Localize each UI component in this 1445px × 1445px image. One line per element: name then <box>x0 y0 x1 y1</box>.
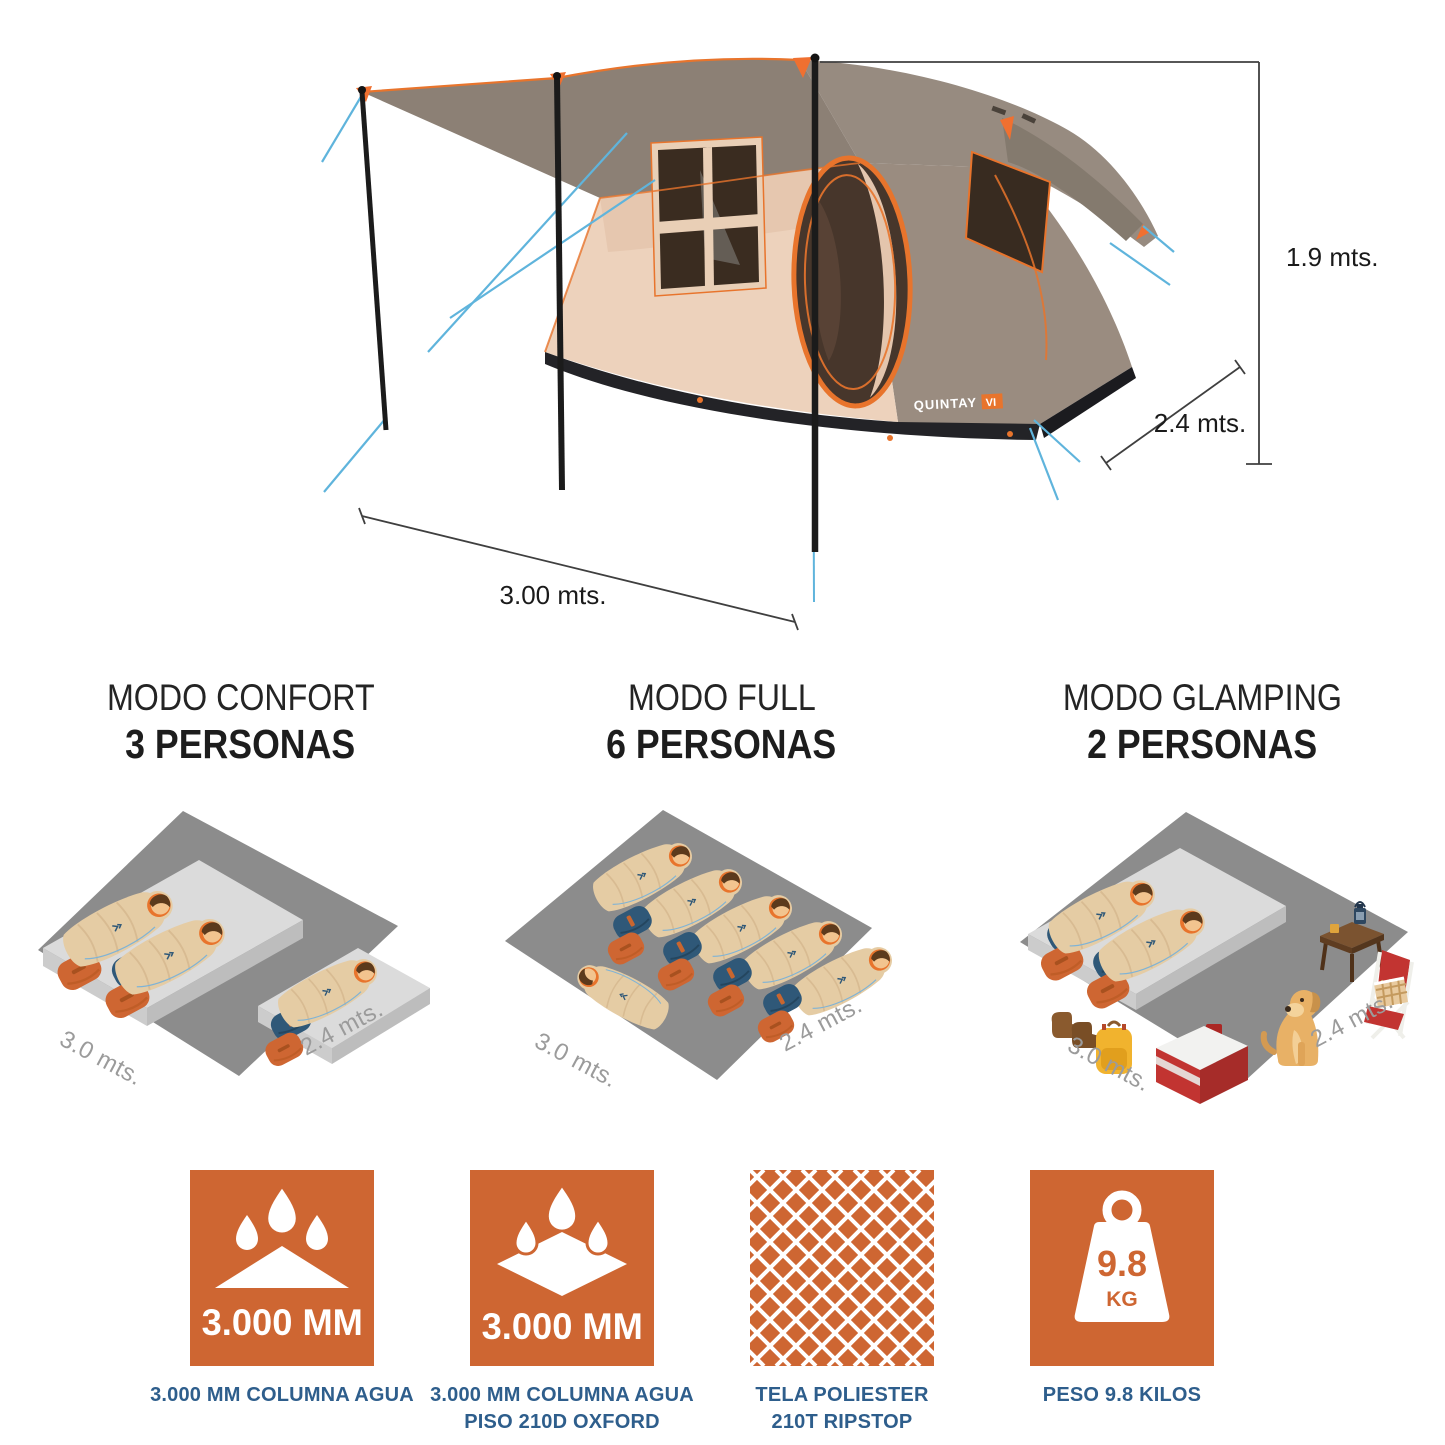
mode-full-illustration: 3.0 mts. 2.4 mts. <box>487 798 957 1134</box>
floor-width-label: 3.0 mts. <box>530 1027 622 1093</box>
caption-line: 3.000 MM COLUMNA AGUA <box>150 1382 414 1409</box>
depth-dimension-label: 2.4 mts. <box>1154 408 1246 438</box>
mode-title: MODO GLAMPING <box>1063 676 1342 720</box>
ripstop-weave-icon <box>750 1170 934 1366</box>
feature-caption: PESO 9.8 KILOS <box>1043 1382 1201 1409</box>
mode-capacity: 3 PERSONAS <box>126 721 356 768</box>
feature-caption: TELA POLIESTER 210T RIPSTOP <box>755 1382 928 1436</box>
weight-unit: KG <box>1106 1288 1138 1311</box>
tent-body: QUINTAY VI <box>356 57 1158 441</box>
mode-glamping-column: MODO GLAMPING 2 PERSONAS <box>962 676 1443 1134</box>
water-column-badge: 3.000 MM <box>190 1170 374 1366</box>
brand-model: VI <box>985 397 996 410</box>
feature-floor-water-column: 3.000 MM 3.000 MM COLUMNA AGUA PISO 210D… <box>470 1170 654 1436</box>
mode-capacity: 6 PERSONAS <box>607 721 837 768</box>
caption-line: PISO 210D OXFORD <box>430 1409 694 1436</box>
front-window <box>651 137 766 296</box>
lantern <box>1354 902 1366 924</box>
capacity-modes-section: MODO CONFORT 3 PERSONAS 3.0 mts. 2.4 mts… <box>0 676 1445 1134</box>
ripstop-badge <box>750 1170 934 1366</box>
mode-title: MODO FULL <box>628 676 816 720</box>
caption-line: TELA POLIESTER <box>755 1382 928 1409</box>
caption-line: 210T RIPSTOP <box>755 1409 928 1436</box>
floor-water-column-value: 3.000 MM <box>481 1306 642 1348</box>
floor-width-label: 3.0 mts. <box>55 1025 147 1091</box>
weight-icon: 9.8 KG <box>1047 1188 1197 1348</box>
feature-caption: 3.000 MM COLUMNA AGUA PISO 210D OXFORD <box>430 1382 694 1436</box>
weight-badge: 9.8 KG <box>1030 1170 1214 1366</box>
weight-value: 9.8 <box>1097 1243 1147 1284</box>
mode-capacity: 2 PERSONAS <box>1088 721 1318 768</box>
floor-water-column-badge: 3.000 MM <box>470 1170 654 1366</box>
feature-water-column: 3.000 MM 3.000 MM COLUMNA AGUA <box>190 1170 374 1436</box>
rain-drops-roof-icon <box>207 1182 357 1300</box>
mode-confort-column: MODO CONFORT 3 PERSONAS 3.0 mts. 2.4 mts… <box>0 676 481 1134</box>
spec-features-section: 3.000 MM 3.000 MM COLUMNA AGUA 3.000 MM … <box>0 1170 1445 1436</box>
tent-illustration: QUINTAY VI <box>0 0 1445 660</box>
mode-glamping-illustration: 3.0 mts. 2.4 mts. <box>968 798 1438 1134</box>
width-dimension-label: 3.00 mts. <box>500 580 607 610</box>
rain-drops-floor-icon <box>487 1182 637 1304</box>
height-dimension-label: 1.9 mts. <box>1286 242 1378 272</box>
awning-pole-left <box>362 92 386 430</box>
water-column-value: 3.000 MM <box>201 1302 362 1344</box>
caption-line: PESO 9.8 KILOS <box>1043 1382 1201 1409</box>
mode-title: MODO CONFORT <box>107 676 375 720</box>
mug <box>1330 924 1339 933</box>
tent-hero-section: QUINTAY VI <box>0 0 1445 660</box>
mode-full-column: MODO FULL 6 PERSONAS 3.0 mts. 2.4 mts. <box>481 676 962 1134</box>
caption-line: 3.000 MM COLUMNA AGUA <box>430 1382 694 1409</box>
mode-confort-illustration: 3.0 mts. 2.4 mts. <box>6 798 476 1134</box>
feature-caption: 3.000 MM COLUMNA AGUA <box>150 1382 414 1409</box>
feature-weight: 9.8 KG PESO 9.8 KILOS <box>1030 1170 1214 1436</box>
feature-ripstop-fabric: TELA POLIESTER 210T RIPSTOP <box>750 1170 934 1436</box>
